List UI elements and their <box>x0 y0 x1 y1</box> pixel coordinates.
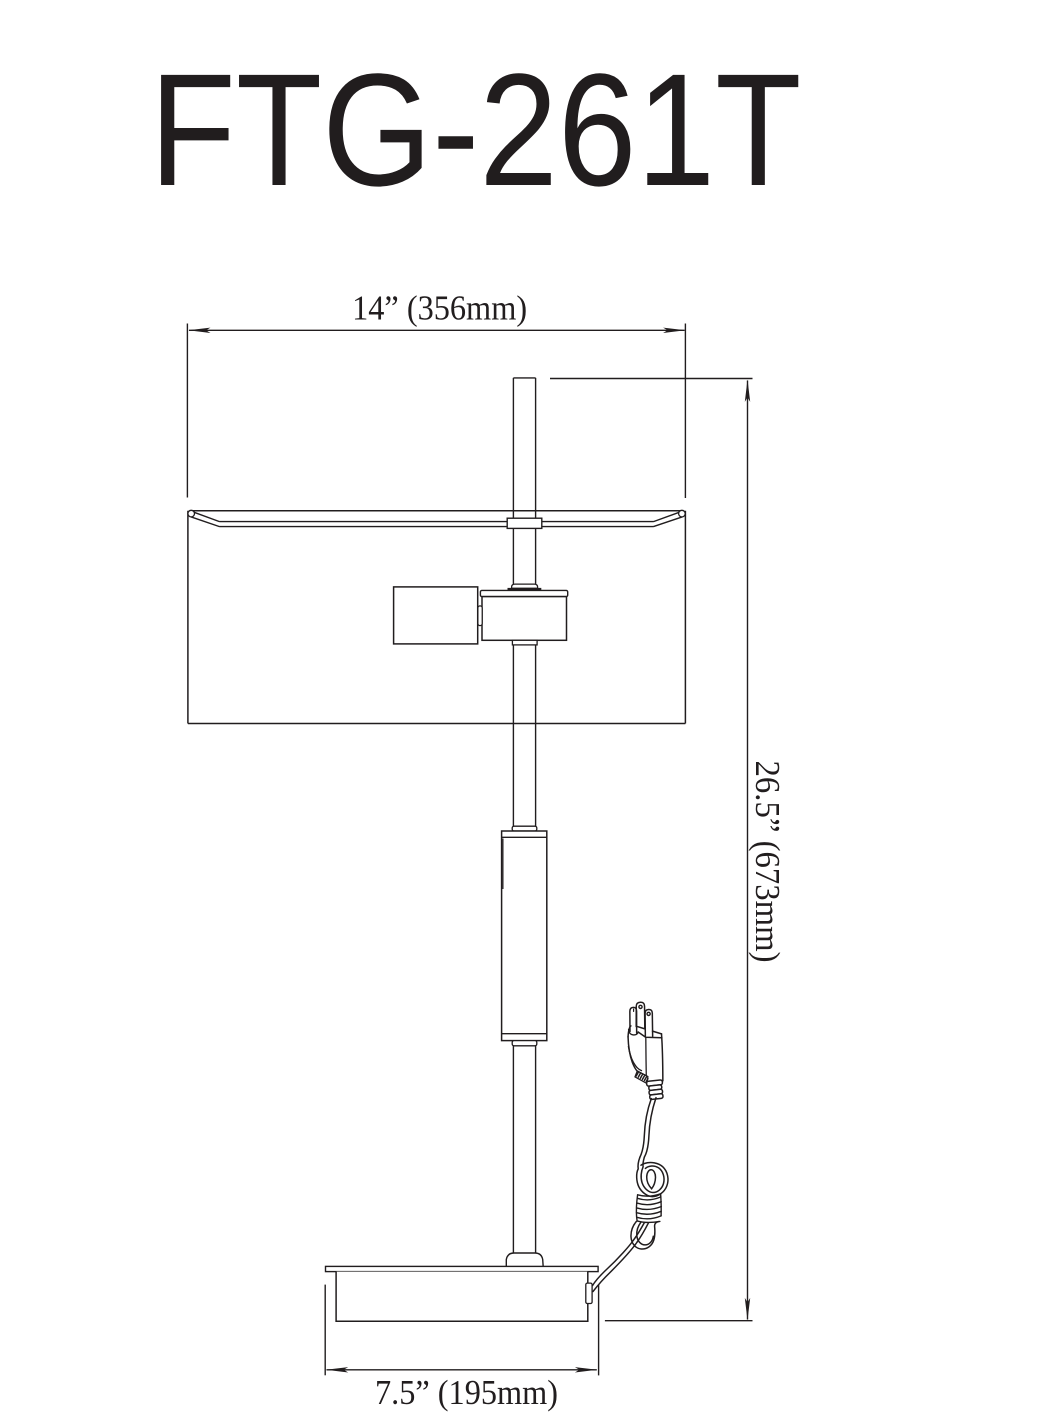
svg-text:26.5” (673mm): 26.5” (673mm) <box>748 761 787 963</box>
svg-text:7.5” (195mm): 7.5” (195mm) <box>375 1373 558 1412</box>
svg-text:14” (356mm): 14” (356mm) <box>352 289 527 328</box>
svg-text:FTG-261T: FTG-261T <box>150 40 802 219</box>
